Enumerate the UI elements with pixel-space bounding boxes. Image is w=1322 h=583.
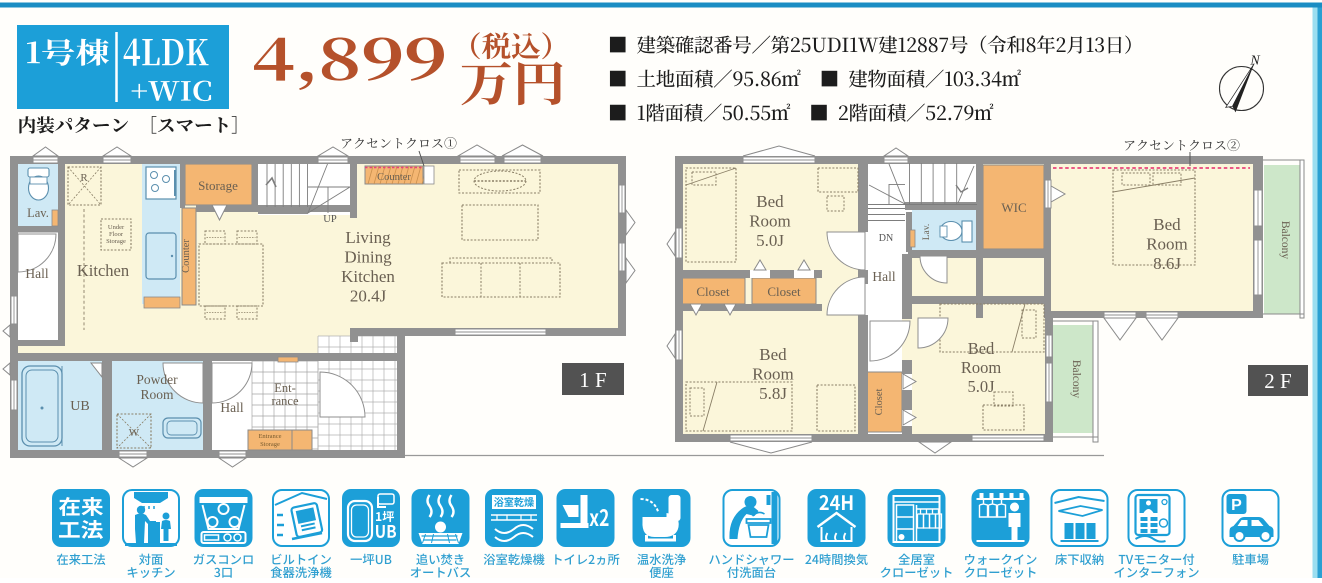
- svg-text:Dining: Dining: [344, 248, 392, 267]
- svg-text:Closet: Closet: [767, 284, 801, 299]
- svg-text:rance: rance: [271, 394, 299, 408]
- svg-text:Ent-: Ent-: [274, 381, 296, 395]
- svg-text:Lav.: Lav.: [27, 206, 49, 220]
- svg-text:Bed: Bed: [756, 192, 784, 211]
- svg-text:Balcony: Balcony: [1279, 221, 1291, 260]
- svg-text:Room: Room: [140, 387, 174, 402]
- svg-text:Bed: Bed: [968, 339, 995, 358]
- svg-text:Bed: Bed: [759, 345, 787, 364]
- svg-text:Hall: Hall: [25, 266, 48, 281]
- svg-text:5.0J: 5.0J: [756, 231, 784, 250]
- svg-text:Closet: Closet: [696, 284, 730, 299]
- svg-text:Storage: Storage: [260, 441, 280, 448]
- svg-text:Balcony: Balcony: [1070, 360, 1082, 399]
- svg-text:Bed: Bed: [1153, 215, 1181, 234]
- svg-text:Storage: Storage: [198, 178, 238, 193]
- svg-text:5.8J: 5.8J: [759, 384, 787, 403]
- svg-text:WIC: WIC: [1001, 200, 1026, 215]
- svg-text:N: N: [1249, 54, 1260, 69]
- svg-text:Powder: Powder: [136, 372, 178, 387]
- svg-text:Hall: Hall: [872, 269, 895, 284]
- svg-text:Room: Room: [961, 358, 1002, 377]
- svg-text:Room: Room: [752, 365, 794, 384]
- svg-text:Room: Room: [1146, 235, 1188, 254]
- svg-text:20.4J: 20.4J: [350, 287, 387, 306]
- svg-text:DN: DN: [879, 233, 893, 244]
- svg-text:8.6J: 8.6J: [1153, 254, 1181, 273]
- svg-text:Counter: Counter: [181, 239, 192, 273]
- svg-text:Kitchen: Kitchen: [77, 261, 129, 280]
- svg-text:2 F: 2 F: [1264, 369, 1291, 393]
- svg-text:Under: Under: [108, 224, 125, 231]
- svg-text:1 F: 1 F: [579, 368, 606, 392]
- svg-text:Kitchen: Kitchen: [341, 267, 395, 286]
- svg-text:UB: UB: [70, 399, 89, 414]
- svg-text:Living: Living: [345, 228, 391, 247]
- svg-text:Floor: Floor: [109, 231, 124, 238]
- svg-text:R: R: [80, 172, 88, 184]
- svg-text:Lav.: Lav.: [922, 224, 932, 241]
- svg-text:Entrance: Entrance: [258, 433, 281, 440]
- svg-text:UP: UP: [323, 214, 337, 225]
- svg-text:Room: Room: [749, 212, 791, 231]
- svg-text:P: P: [1231, 497, 1242, 514]
- svg-text:Hall: Hall: [220, 400, 243, 415]
- svg-text:Counter: Counter: [377, 172, 411, 183]
- svg-text:Closet: Closet: [874, 389, 885, 416]
- svg-text:W: W: [129, 427, 140, 439]
- svg-text:5.0J: 5.0J: [967, 377, 995, 396]
- svg-text:Storage: Storage: [106, 238, 126, 245]
